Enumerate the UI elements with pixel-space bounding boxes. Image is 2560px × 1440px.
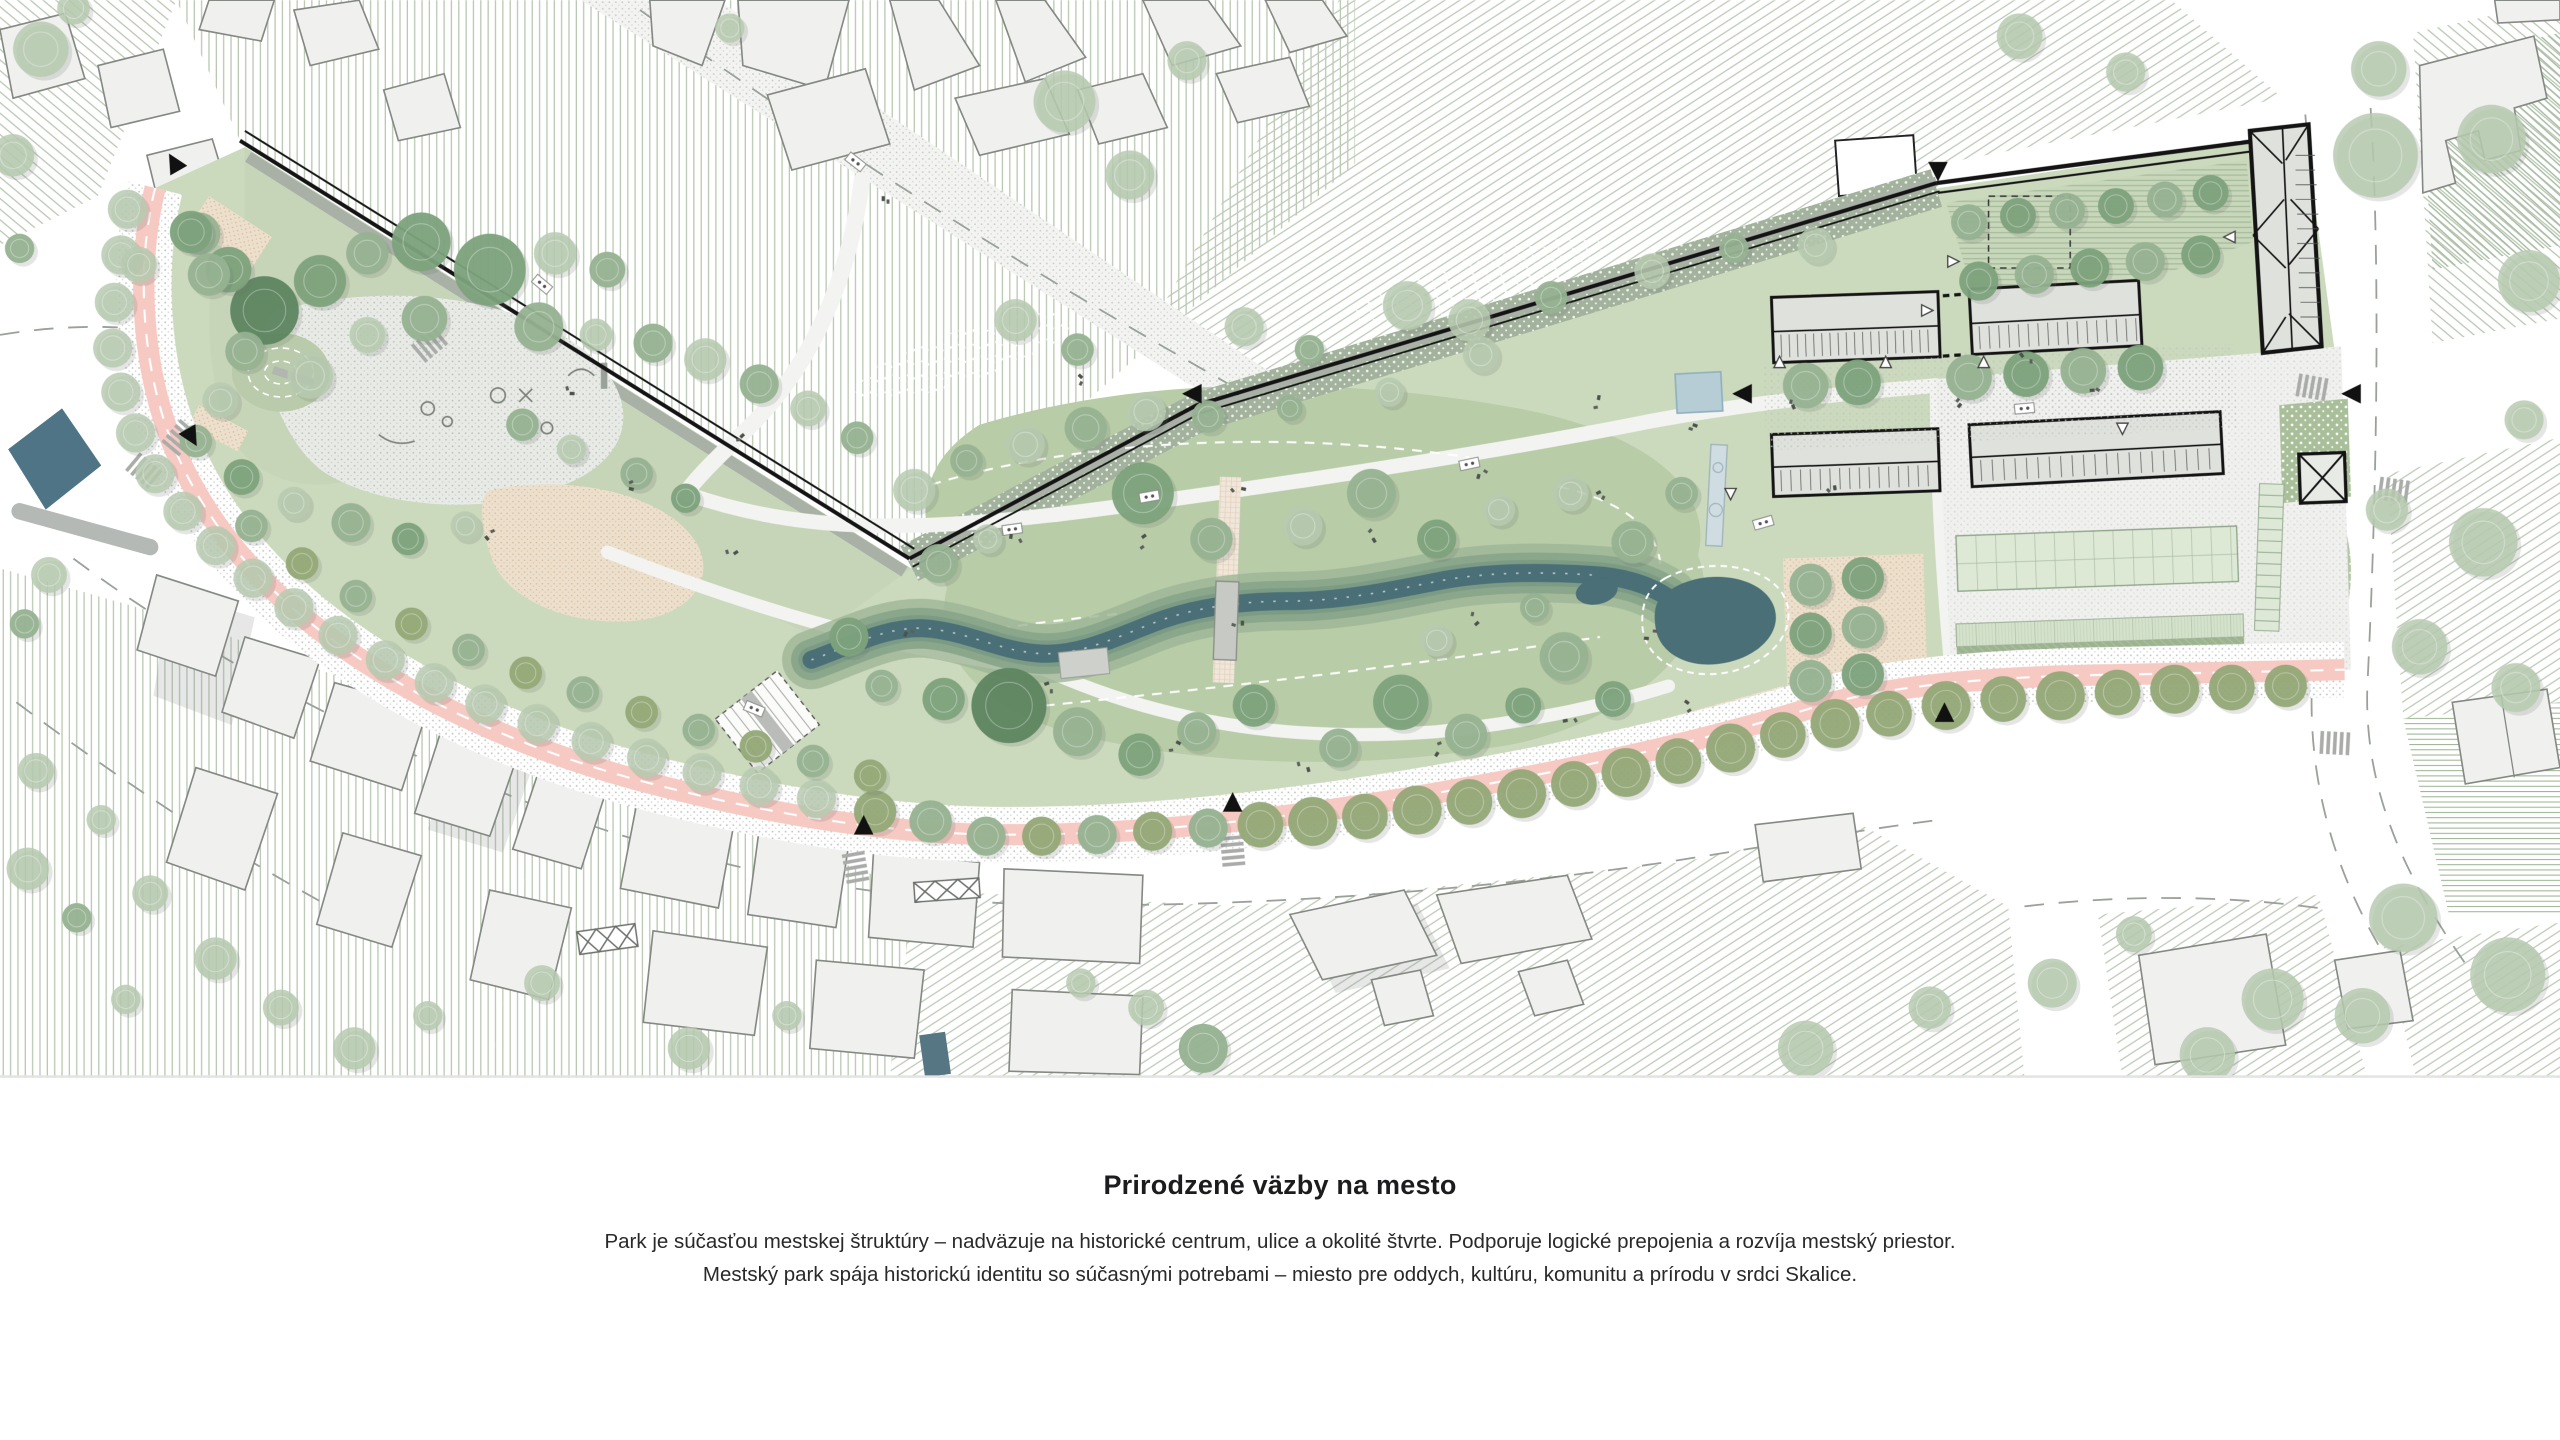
bench — [1002, 523, 1023, 535]
caption-line-1: Park je súčasťou mestskej štruktúry – na… — [230, 1225, 2330, 1258]
gable-roof-building — [2250, 124, 2322, 353]
community-gardens — [1956, 526, 2239, 591]
presentation-board: Prirodzené väzby na mesto Park je súčasť… — [0, 0, 2560, 1440]
truss-bridge — [914, 878, 981, 902]
caption-line-2: Mestský park spája historickú identitu s… — [230, 1258, 2330, 1291]
caption-block: Prirodzené väzby na mesto Park je súčasť… — [0, 1078, 2560, 1291]
bench — [2014, 403, 2034, 414]
water-mirror-pool — [1675, 372, 1723, 414]
gazebo — [2299, 453, 2346, 504]
site-plan-svg — [0, 0, 2560, 1078]
caption-paragraph: Park je súčasťou mestskej štruktúry – na… — [230, 1225, 2330, 1291]
garden-ladder-strip — [2254, 483, 2284, 631]
caption-title: Prirodzené väzby na mesto — [0, 1170, 2560, 1201]
parking-strip-1 — [1771, 292, 1940, 363]
masterplan-drawing — [0, 0, 2560, 1078]
